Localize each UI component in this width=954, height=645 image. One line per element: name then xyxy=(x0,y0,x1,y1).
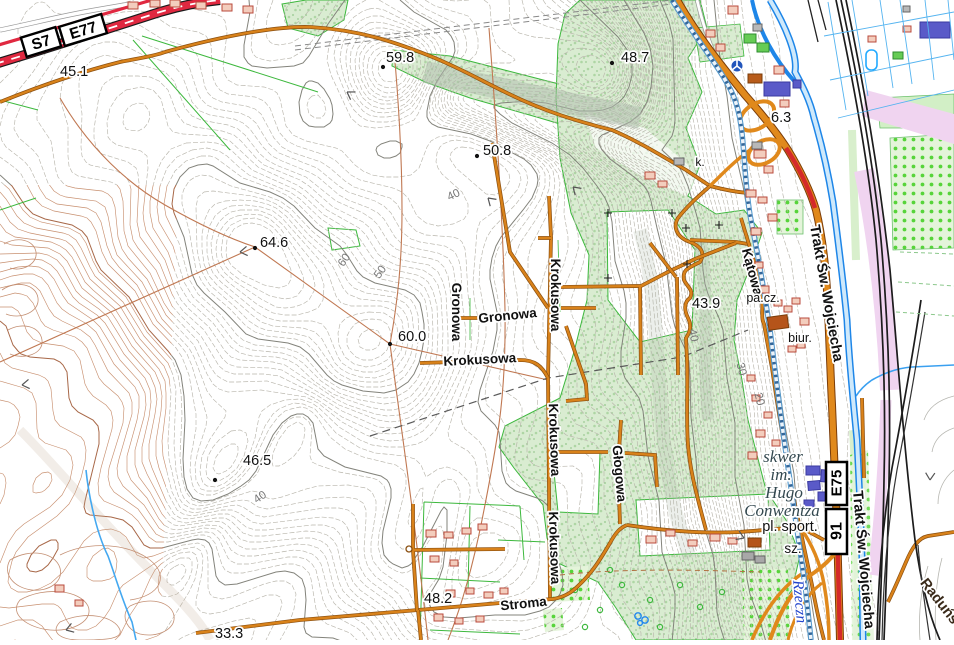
svg-text:biur.: biur. xyxy=(788,331,812,345)
svg-text:im.: im. xyxy=(770,465,791,484)
svg-text:Hugo: Hugo xyxy=(764,483,803,502)
svg-text:91: 91 xyxy=(829,522,846,540)
svg-text:Conwentza: Conwentza xyxy=(744,501,820,520)
svg-text:sz.: sz. xyxy=(784,541,801,556)
svg-text:46.5: 46.5 xyxy=(243,453,271,469)
svg-text:Krokusowa: Krokusowa xyxy=(548,259,563,332)
svg-text:59.8: 59.8 xyxy=(386,50,414,66)
svg-text:pa.cz.: pa.cz. xyxy=(746,291,779,305)
svg-text:E75: E75 xyxy=(829,470,846,497)
svg-text:Gronowa: Gronowa xyxy=(449,283,464,342)
svg-text:60.0: 60.0 xyxy=(398,329,426,345)
svg-text:48.2: 48.2 xyxy=(424,591,452,607)
svg-text:43.9: 43.9 xyxy=(692,296,720,312)
svg-text:Krokusowa: Krokusowa xyxy=(546,511,564,585)
svg-text:k.: k. xyxy=(695,155,704,169)
svg-text:Krokusowa: Krokusowa xyxy=(546,403,564,477)
svg-text:45.1: 45.1 xyxy=(60,64,88,80)
svg-text:50.8: 50.8 xyxy=(483,143,511,159)
svg-text:48.7: 48.7 xyxy=(621,50,649,66)
svg-text:pl. sport.: pl. sport. xyxy=(762,519,818,535)
svg-text:6.3: 6.3 xyxy=(771,110,791,126)
svg-text:skwer: skwer xyxy=(763,447,803,466)
svg-text:33.3: 33.3 xyxy=(215,626,243,640)
svg-text:64.6: 64.6 xyxy=(260,235,288,251)
